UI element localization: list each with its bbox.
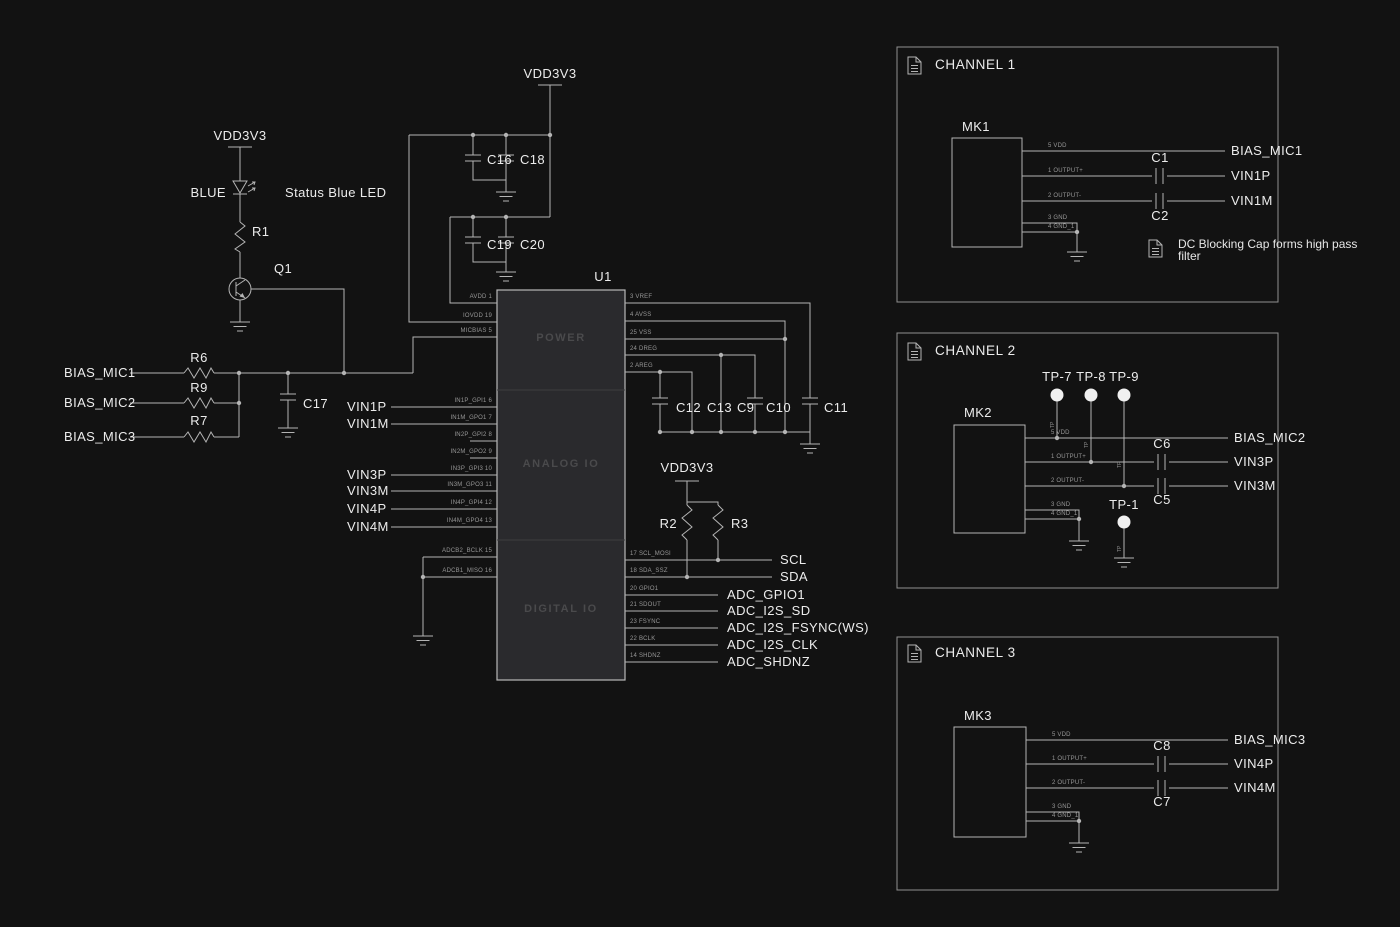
ref-label-c11: C11: [824, 401, 848, 414]
tp-stem-mark: TP: [1085, 442, 1090, 448]
ref-label-c19: C19: [487, 238, 512, 251]
ref-label-mk1: MK1: [962, 120, 990, 133]
u1-pin-vss: 25 VSS: [630, 330, 652, 336]
net-label-vin3m: VIN3M: [347, 484, 389, 497]
led-status-branch: [228, 147, 344, 373]
u1-pin-micbias: MICBIAS 5: [461, 328, 492, 334]
channel-2-title: CHANNEL 2: [935, 344, 1016, 358]
ref-label-c8: C8: [1153, 739, 1170, 752]
u1-pin-avdd: AVDD 1: [470, 294, 492, 300]
u1-section-power: POWER: [536, 333, 586, 344]
mk3-pin-outm: 2 OUTPUT-: [1052, 780, 1085, 786]
note-status-blue-led: Status Blue LED: [285, 186, 386, 199]
ref-label-c5: C5: [1153, 493, 1170, 506]
net-label-bias-mic3: BIAS_MIC3: [64, 430, 136, 443]
u1-section-digital-io: DIGITAL IO: [524, 604, 598, 615]
mk3-pin-vdd: 5 VDD: [1052, 732, 1071, 738]
ref-label-r1: R1: [252, 225, 269, 238]
resistor-r6-icon: [184, 368, 214, 378]
net-label-ch2-vinp: VIN3P: [1234, 455, 1274, 468]
net-label-blue: BLUE: [190, 186, 226, 199]
net-label-adc-gpio1: ADC_GPIO1: [727, 588, 805, 601]
note-icon: [908, 343, 921, 360]
ground-icon: [278, 428, 298, 437]
testpoint-tp8-icon: [1085, 389, 1098, 402]
mk3-pin-gnd1: 4 GND_1: [1052, 813, 1078, 819]
u1-pin-in1m: IN1M_GPO1 7: [450, 415, 492, 421]
mk2-pin-gnd: 3 GND: [1051, 502, 1070, 508]
mk1-pin-vdd: 5 VDD: [1048, 143, 1067, 149]
u1-pin-dreg: 24 DREG: [630, 346, 657, 352]
capacitor-c6-c5-icons: [1158, 454, 1165, 494]
net-label-vin3p: VIN3P: [347, 468, 387, 481]
bias-network: [130, 337, 497, 442]
net-label-ch3-vinm: VIN4M: [1234, 781, 1276, 794]
panel-channel-1: [897, 47, 1278, 302]
note-icon: [908, 645, 921, 662]
u1-body: [497, 290, 625, 680]
u1-pin-miso: ADCB1_MISO 16: [442, 568, 492, 574]
mic-mk2-body: [954, 425, 1025, 533]
resistor-r9-icon: [184, 398, 214, 408]
testpoint-tp1-icon: [1118, 516, 1131, 529]
net-label-ch1-vinm: VIN1M: [1231, 194, 1273, 207]
u1-pin-iovdd: IOVDD 19: [463, 313, 492, 319]
ref-label-mk3: MK3: [964, 709, 992, 722]
u1-pin-fsync: 23 FSYNC: [630, 619, 660, 625]
mk1-pin-gnd: 3 GND: [1048, 215, 1067, 221]
resistor-r1-icon: [235, 222, 245, 252]
mk2-pin-vdd: 5 VDD: [1051, 430, 1070, 436]
testpoint-tp7-icon: [1051, 389, 1064, 402]
u1-pin-avss: 4 AVSS: [630, 312, 651, 318]
tp-stem-mark: TP: [1118, 462, 1123, 468]
net-label-ch2-bias: BIAS_MIC2: [1234, 431, 1306, 444]
u1-pin-in1p: IN1P_GPI1 6: [454, 398, 492, 404]
mk2-pin-outm: 2 OUTPUT-: [1051, 478, 1084, 484]
u1-pin-areg: 2 AREG: [630, 363, 653, 369]
ref-label-r2: R2: [660, 517, 677, 530]
u1-section-analog-io: ANALOG IO: [523, 459, 600, 470]
u1-pin-in2m: IN2M_GPO2 9: [450, 449, 492, 455]
net-label-adc-i2s-clk: ADC_I2S_CLK: [727, 638, 818, 651]
ref-label-c2: C2: [1151, 209, 1168, 222]
testpoint-label-tp1: TP-1: [1109, 498, 1139, 511]
i2c-pullups: [675, 481, 723, 577]
ground-icon: [413, 636, 433, 645]
ref-label-c17: C17: [303, 397, 328, 410]
ground-icon: [496, 272, 516, 281]
capacitor-c12-icon: [652, 398, 668, 404]
mic-mk1-body: [952, 138, 1022, 247]
net-label-vdd3v3: VDD3V3: [214, 129, 267, 142]
net-label-bias-mic2: BIAS_MIC2: [64, 396, 136, 409]
net-label-ch2-vinm: VIN3M: [1234, 479, 1276, 492]
schematic-canvas: VDD3V3 BLUE Status Blue LED R1 Q1 BIAS_M…: [0, 0, 1400, 927]
mk1-pin-outp: 1 OUTPUT+: [1048, 168, 1083, 174]
net-label-adc-i2s-fsync: ADC_I2S_FSYNC(WS): [727, 621, 869, 634]
panel-channel-3: [897, 637, 1278, 890]
capacitor-c8-c7-icons: [1158, 756, 1165, 796]
u1-pin-in4p: IN4P_GPI4 12: [451, 500, 492, 506]
net-label-sda: SDA: [780, 570, 808, 583]
resistor-r2-icon: [682, 505, 692, 540]
ground-icon: [800, 444, 820, 453]
mk3-pin-gnd: 3 GND: [1052, 804, 1071, 810]
net-label-bias-mic1: BIAS_MIC1: [64, 366, 136, 379]
ref-label-q1: Q1: [274, 262, 292, 275]
ref-label-c16: C16: [487, 153, 512, 166]
net-label-adc-shdnz: ADC_SHDNZ: [727, 655, 810, 668]
u1-pin-bclk2: ADCB2_BCLK 15: [442, 548, 492, 554]
ref-label-c9: C9: [737, 401, 754, 414]
resistor-r7-icon: [184, 432, 214, 442]
testpoint-label-tp7: TP-7: [1042, 370, 1072, 383]
ref-label-r9: R9: [190, 381, 207, 394]
ref-label-r6: R6: [190, 351, 207, 364]
ground-icon: [1069, 541, 1089, 550]
ref-label-c20: C20: [520, 238, 545, 251]
u1-pin-in4m: IN4M_GPO4 13: [447, 518, 492, 524]
mk2-pin-gnd1: 4 GND_1: [1051, 511, 1077, 517]
capacitor-c16-icon: [465, 155, 481, 161]
transistor-q1-icon: [229, 278, 251, 300]
net-label-vin1p: VIN1P: [347, 400, 387, 413]
capacitor-c11-icon: [802, 398, 818, 404]
net-label-ch3-vinp: VIN4P: [1234, 757, 1274, 770]
ref-label-r3: R3: [731, 517, 748, 530]
capacitor-c19-icon: [465, 237, 481, 243]
mk2-pin-outp: 1 OUTPUT+: [1051, 454, 1086, 460]
u1-pin-gpio1: 20 GPIO1: [630, 586, 658, 592]
ground-icon: [1069, 843, 1089, 852]
tp-stem-mark: TP: [1118, 546, 1123, 552]
net-label-ch1-bias: BIAS_MIC1: [1231, 144, 1303, 157]
net-label-vdd3v3-i2c: VDD3V3: [661, 461, 714, 474]
ref-label-r7: R7: [190, 414, 207, 427]
ground-icon: [1067, 252, 1087, 261]
mic-mk3-body: [954, 727, 1026, 837]
testpoint-tp9-icon: [1118, 389, 1131, 402]
ref-label-mk2: MK2: [964, 406, 992, 419]
u1-pin-shdnz: 14 SHDNZ: [630, 653, 661, 659]
net-label-scl: SCL: [780, 553, 807, 566]
net-label-vin4p: VIN4P: [347, 502, 387, 515]
channel-3-title: CHANNEL 3: [935, 646, 1016, 660]
mk1-pin-gnd1: 4 GND_1: [1048, 224, 1074, 230]
ground-icon: [1114, 558, 1134, 567]
led-icon: [233, 181, 247, 193]
capacitor-c1-c2-icons: [1156, 168, 1163, 209]
u1-pin-vref: 3 VREF: [630, 294, 652, 300]
net-label-adc-i2s-sd: ADC_I2S_SD: [727, 604, 810, 617]
net-label-vdd3v3-top: VDD3V3: [524, 67, 577, 80]
resistor-r3-icon: [713, 505, 723, 540]
channel-1-title: CHANNEL 1: [935, 58, 1016, 72]
ref-label-u1: U1: [594, 270, 611, 283]
mk1-pin-outm: 2 OUTPUT-: [1048, 193, 1081, 199]
u1-pin-in3p: IN3P_GPI3 10: [451, 466, 492, 472]
ground-icon: [496, 192, 516, 201]
ref-label-c10: C10: [766, 401, 791, 414]
mk3-pin-outp: 1 OUTPUT+: [1052, 756, 1087, 762]
net-label-vin1m: VIN1M: [347, 417, 389, 430]
note-dc-blocking-line1: DC Blocking Cap forms high pass: [1178, 238, 1357, 250]
ref-label-c18: C18: [520, 153, 545, 166]
ground-icon: [230, 322, 250, 331]
net-label-ch3-bias: BIAS_MIC3: [1234, 733, 1306, 746]
u1-pin-sdout: 21 SDOUT: [630, 602, 661, 608]
ref-label-c7: C7: [1153, 795, 1170, 808]
note-icon: [1149, 240, 1162, 257]
ref-label-c13: C13: [707, 401, 732, 414]
ref-label-c12: C12: [676, 401, 701, 414]
capacitor-c17-icon: [280, 394, 296, 400]
note-icon: [908, 57, 921, 74]
u1-pin-sda: 18 SDA_SSZ: [630, 568, 668, 574]
u1-pin-in2p: IN2P_GPI2 8: [454, 432, 492, 438]
u1-pin-scl: 17 SCL_MOSI: [630, 551, 671, 557]
note-dc-blocking-line2: filter: [1178, 250, 1201, 262]
tp-stem-mark: TP: [1051, 422, 1056, 428]
u1-pin-bclk: 22 BCLK: [630, 636, 655, 642]
testpoint-label-tp8: TP-8: [1076, 370, 1106, 383]
u1-pin-in3m: IN3M_GPO3 11: [447, 482, 492, 488]
net-label-ch1-vinp: VIN1P: [1231, 169, 1271, 182]
channel-1-border: [897, 47, 1278, 302]
ref-label-c6: C6: [1153, 437, 1170, 450]
ref-label-c1: C1: [1151, 151, 1168, 164]
testpoint-label-tp9: TP-9: [1109, 370, 1139, 383]
net-label-vin4m: VIN4M: [347, 520, 389, 533]
